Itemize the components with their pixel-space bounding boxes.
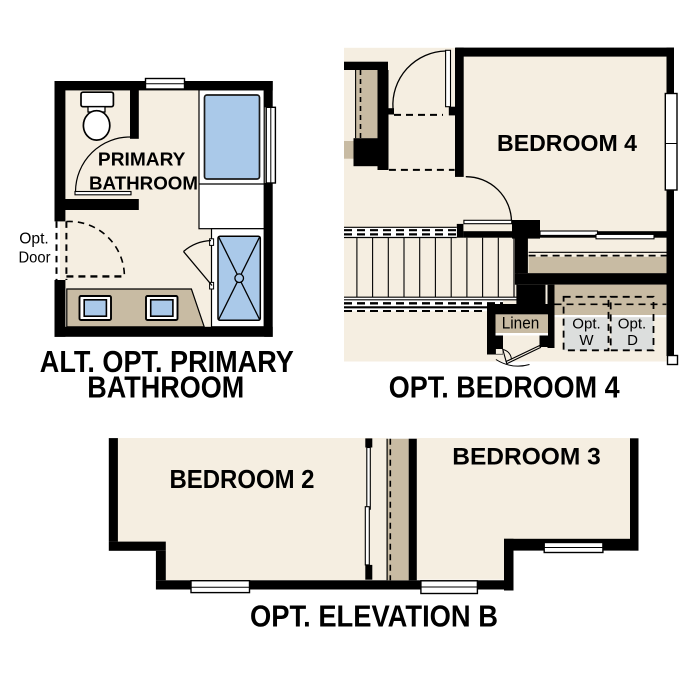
svg-text:D: D <box>627 332 638 349</box>
svg-text:PRIMARY: PRIMARY <box>98 149 186 169</box>
svg-text:BEDROOM 4: BEDROOM 4 <box>497 130 637 156</box>
svg-text:Opt.: Opt. <box>19 230 49 247</box>
svg-text:Opt.: Opt. <box>618 316 647 333</box>
svg-text:OPT. ELEVATION B: OPT. ELEVATION B <box>250 600 498 634</box>
svg-text:BATHROOM: BATHROOM <box>87 370 244 404</box>
svg-text:BEDROOM 3: BEDROOM 3 <box>452 444 601 471</box>
svg-text:W: W <box>579 332 594 349</box>
svg-text:BEDROOM 2: BEDROOM 2 <box>170 466 315 494</box>
svg-text:BATHROOM: BATHROOM <box>89 174 198 194</box>
svg-text:Door: Door <box>19 249 51 266</box>
svg-text:Linen: Linen <box>502 314 540 332</box>
svg-text:Opt.: Opt. <box>572 316 601 333</box>
svg-text:OPT. BEDROOM 4: OPT. BEDROOM 4 <box>389 370 620 404</box>
